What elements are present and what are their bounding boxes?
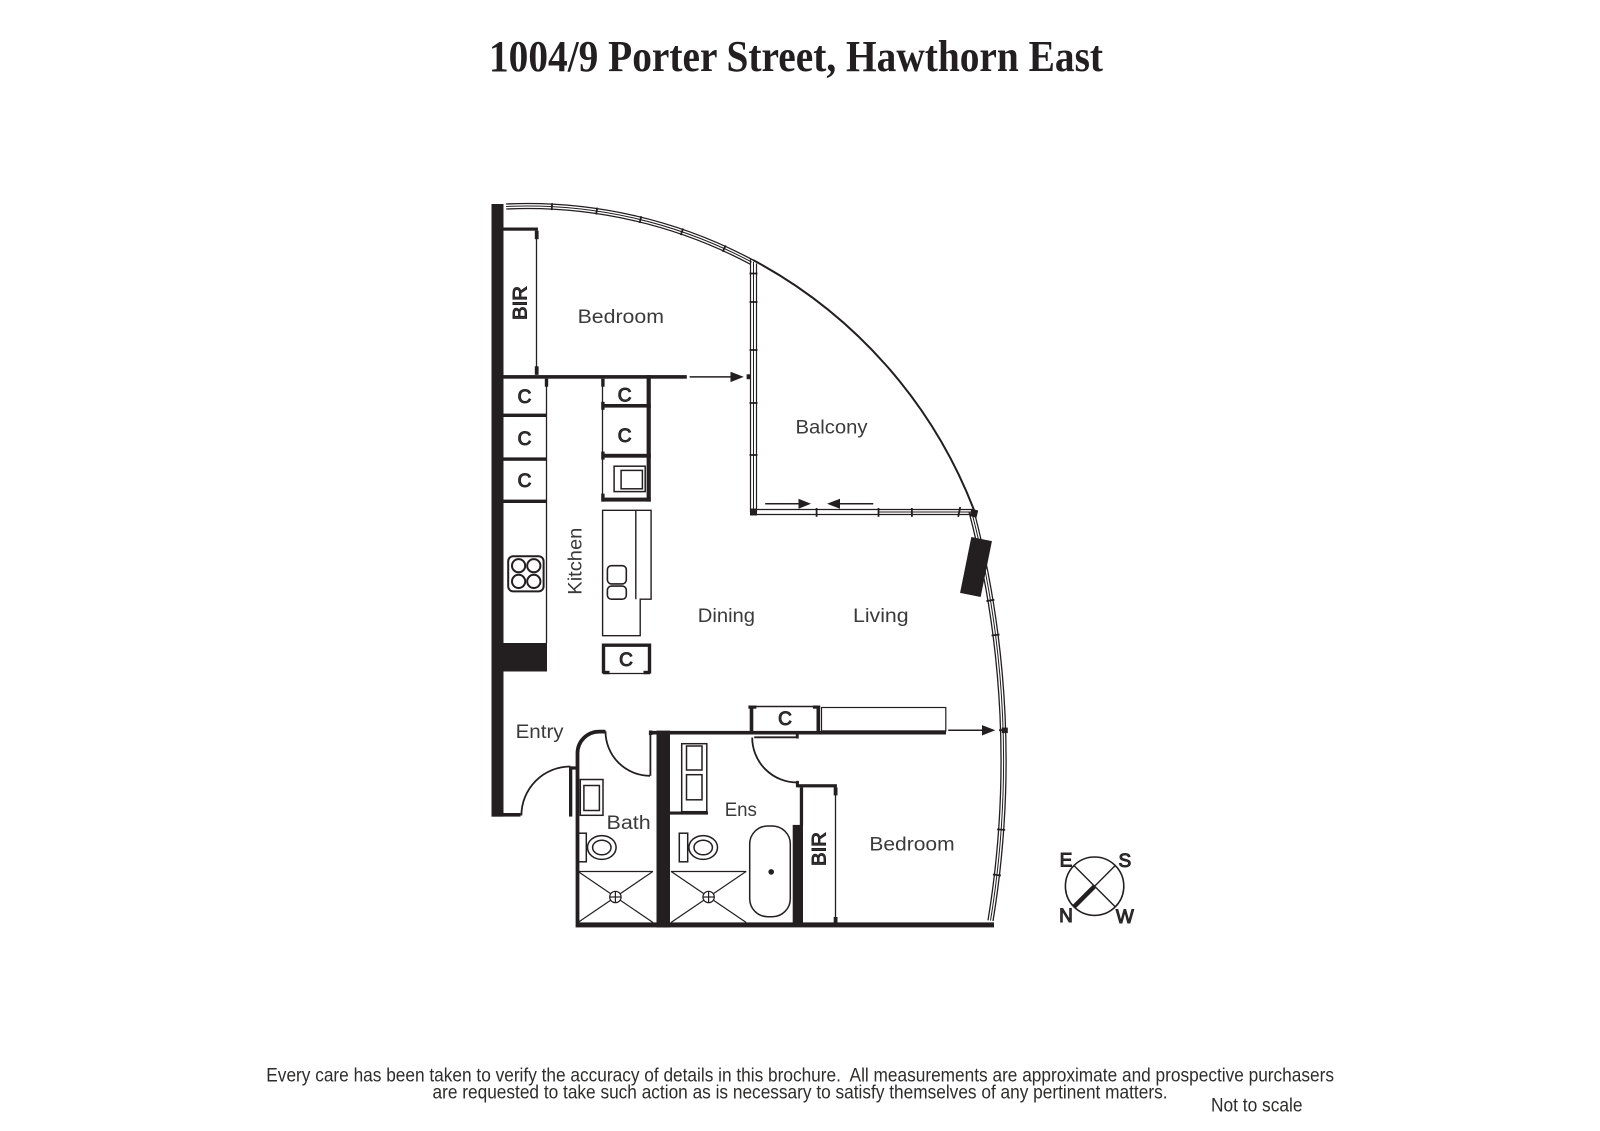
svg-text:BIR: BIR <box>511 286 532 320</box>
svg-text:Bedroom: Bedroom <box>578 307 664 328</box>
svg-text:S: S <box>1119 851 1132 872</box>
svg-text:N: N <box>1059 906 1073 927</box>
svg-text:1004/9 Porter Street, Hawthorn: 1004/9 Porter Street, Hawthorn East <box>489 32 1103 81</box>
svg-text:W: W <box>1116 907 1134 928</box>
svg-text:BIR: BIR <box>809 832 830 866</box>
svg-text:E: E <box>1060 850 1073 871</box>
svg-text:C: C <box>618 426 632 447</box>
svg-text:Not to scale: Not to scale <box>1211 1094 1303 1116</box>
svg-text:C: C <box>518 387 532 408</box>
svg-text:Kitchen: Kitchen <box>566 528 587 595</box>
svg-text:C: C <box>618 386 632 407</box>
svg-text:are requested to take such act: are requested to take such action as is … <box>433 1081 1168 1103</box>
svg-text:C: C <box>619 650 633 671</box>
svg-text:Balcony: Balcony <box>796 418 869 439</box>
svg-text:Entry: Entry <box>516 722 565 743</box>
svg-text:Dining: Dining <box>698 606 755 627</box>
svg-text:Ens: Ens <box>725 800 757 821</box>
svg-text:C: C <box>518 429 532 450</box>
svg-text:Bath: Bath <box>607 813 651 834</box>
svg-text:Living: Living <box>853 606 909 627</box>
svg-text:Bedroom: Bedroom <box>869 835 954 856</box>
svg-text:C: C <box>518 471 532 492</box>
svg-text:C: C <box>778 709 792 730</box>
